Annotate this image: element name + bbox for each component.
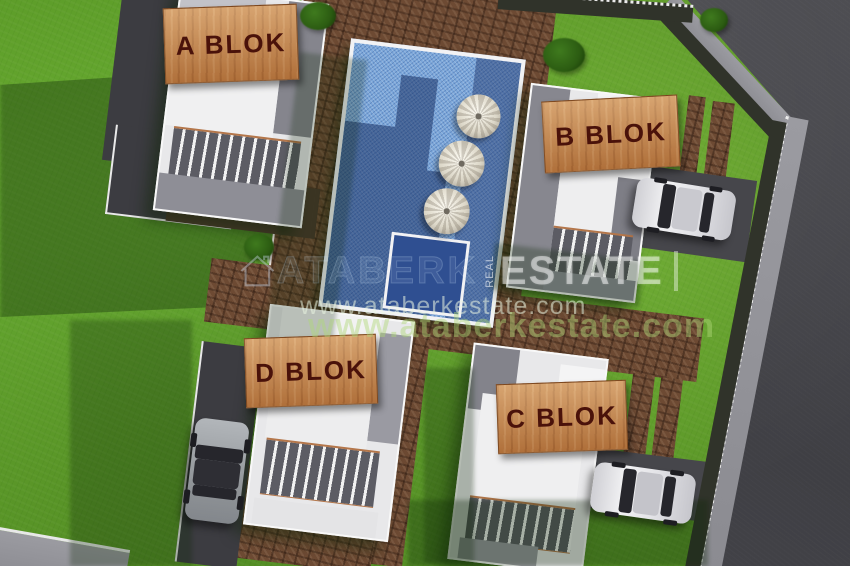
car-silver-c-rear-window: [660, 476, 676, 517]
block-sign-b: B BLOK: [541, 94, 681, 173]
kids-pool: [383, 232, 470, 318]
bush-1: [543, 38, 585, 72]
block-sign-c: C BLOK: [496, 380, 628, 454]
block-sign-c-label: C BLOK: [506, 400, 619, 435]
aerial-site-plan-render: A BLOK B BLOK D BLOK C BLOK: [0, 0, 850, 566]
bush-3: [244, 234, 274, 260]
car-white-b-roof: [671, 187, 703, 233]
block-sign-d-label: D BLOK: [255, 354, 368, 389]
wheel: [183, 490, 190, 504]
bush-4: [700, 8, 728, 32]
bush-2: [300, 2, 336, 30]
shadow-left-of-d: [70, 320, 192, 566]
block-sign-a: A BLOK: [163, 4, 300, 85]
block-sign-a-label: A BLOK: [175, 27, 287, 62]
block-sign-b-label: B BLOK: [554, 116, 667, 153]
block-sign-d: D BLOK: [244, 334, 378, 409]
car-silver-c: [589, 461, 697, 525]
car-gray-d: [184, 417, 250, 525]
car-silver-c-roof: [632, 471, 664, 516]
